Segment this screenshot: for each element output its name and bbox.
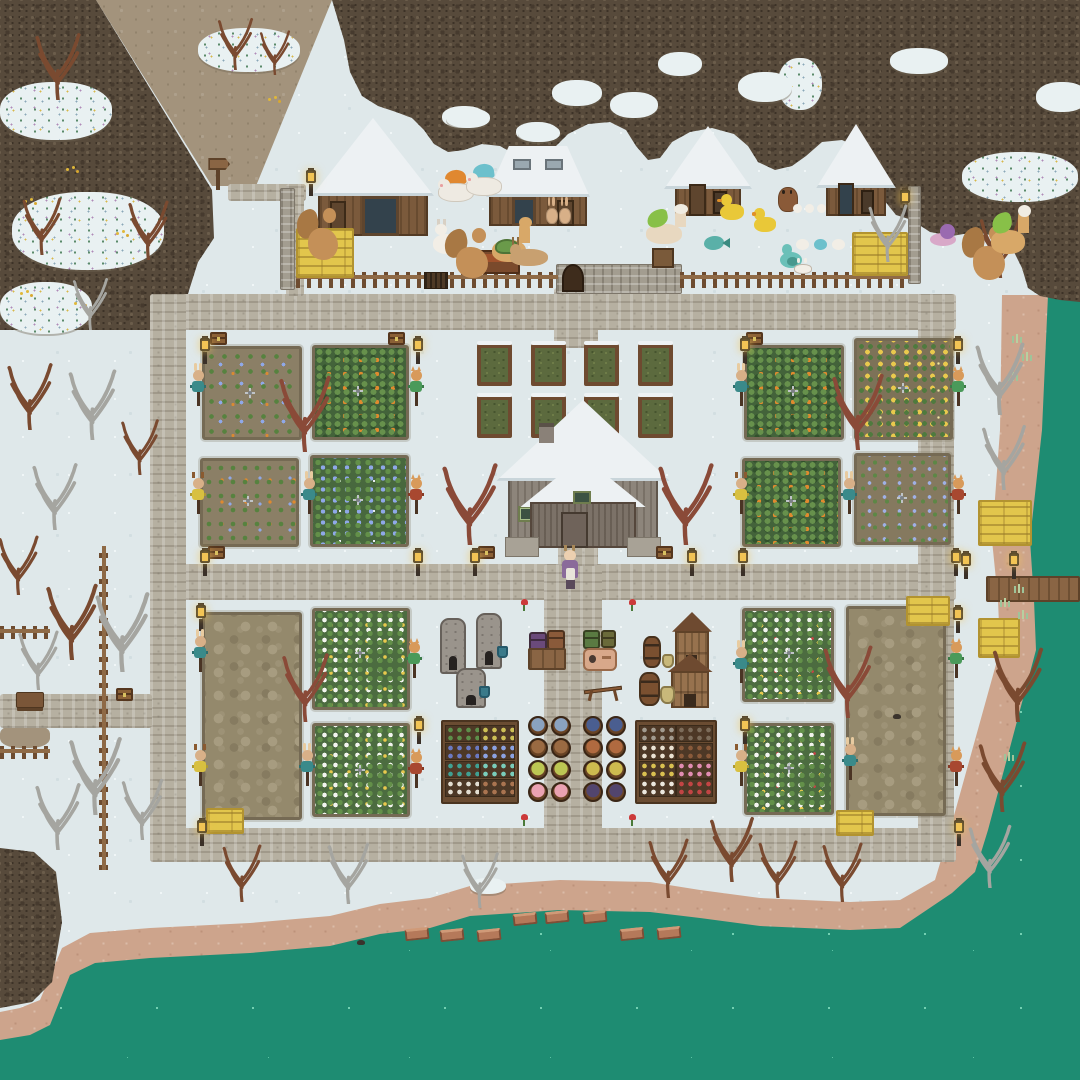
yellow-flowers [20, 290, 34, 298]
scarecrow-bunny[interactable] [841, 476, 857, 516]
press-machine[interactable] [583, 648, 617, 671]
bare-tree[interactable] [817, 838, 868, 902]
animal-dragon[interactable] [444, 226, 488, 278]
scarecrow-cat[interactable] [948, 640, 964, 680]
bare-tree[interactable] [435, 457, 505, 545]
bare-tree[interactable] [322, 838, 375, 904]
lantern-post[interactable] [958, 551, 974, 581]
snow-pocket [610, 92, 658, 118]
bare-tree[interactable] [753, 836, 803, 898]
stone-path-top [150, 294, 956, 330]
bare-tree[interactable] [1, 358, 59, 430]
wooden-crate[interactable] [652, 248, 674, 268]
machine-chest[interactable] [601, 630, 616, 648]
pen-gate-arch[interactable] [562, 264, 584, 292]
red-tulip [521, 599, 528, 611]
lantern-post[interactable] [1006, 551, 1022, 581]
bare-tree[interactable] [116, 415, 164, 475]
small-bird[interactable] [357, 940, 365, 945]
grass-tuft [1000, 598, 1010, 607]
sprinkler[interactable] [353, 386, 363, 396]
lantern-post[interactable] [410, 548, 426, 578]
snow-bush [446, 108, 490, 128]
vine-trellis[interactable] [584, 344, 619, 386]
produce-stand-left[interactable] [441, 720, 519, 804]
scarecrow-cat[interactable] [408, 476, 424, 516]
animal-duck[interactable] [754, 208, 778, 232]
wooden-fence [0, 746, 50, 759]
bare-tree[interactable] [13, 626, 64, 690]
animal-rabbit[interactable] [794, 258, 812, 274]
lantern-post[interactable] [950, 336, 966, 366]
animal-dots[interactable] [793, 203, 827, 213]
vine-trellis[interactable] [638, 344, 673, 386]
scarecrow-cat[interactable] [950, 476, 966, 516]
scarecrow-deer[interactable] [733, 476, 749, 516]
animal-llamagreen[interactable] [991, 208, 1029, 254]
wooden-keg[interactable] [643, 636, 661, 668]
animal-rabbit[interactable] [559, 198, 571, 224]
scarecrow-cat[interactable] [408, 750, 424, 790]
vine-trellis[interactable] [531, 344, 566, 386]
bare-tree[interactable] [62, 364, 123, 440]
bare-tree[interactable] [986, 642, 1050, 722]
scarecrow-deer[interactable] [190, 476, 206, 516]
lantern-post[interactable] [467, 548, 483, 578]
animal-fish[interactable] [704, 234, 730, 252]
small-bird[interactable] [893, 714, 901, 719]
animal-wingcow[interactable] [466, 164, 502, 196]
clay-pot[interactable] [662, 654, 674, 668]
snow-bush [518, 124, 560, 142]
bare-tree[interactable] [863, 200, 913, 262]
bare-tree[interactable] [972, 736, 1033, 812]
bare-tree[interactable] [217, 840, 267, 902]
yellow-flowers [268, 96, 282, 104]
bare-tree[interactable] [68, 274, 113, 330]
beach-plank [404, 927, 429, 941]
animal-duck[interactable] [720, 194, 746, 220]
bare-tree[interactable] [817, 640, 879, 718]
lantern-post[interactable] [684, 548, 700, 578]
bare-tree[interactable] [963, 820, 1017, 888]
red-tulip [629, 599, 636, 611]
wooden-keg[interactable] [639, 672, 660, 706]
clay-pot[interactable] [660, 686, 675, 704]
sprinkler[interactable] [243, 496, 253, 506]
scarecrow-bunny[interactable] [733, 368, 749, 408]
bare-tree[interactable] [17, 193, 67, 255]
lantern-post[interactable] [194, 818, 210, 848]
bare-tree[interactable] [29, 28, 87, 100]
lantern-post[interactable] [197, 548, 213, 578]
work-table[interactable] [528, 648, 566, 670]
sprinkler[interactable] [355, 648, 365, 658]
lantern-post[interactable] [411, 716, 427, 746]
water-bucket[interactable] [479, 686, 490, 698]
scarecrow-bunny[interactable] [190, 368, 206, 408]
sprinkler[interactable] [897, 493, 907, 503]
bare-tree[interactable] [643, 834, 694, 898]
snow-pocket [552, 80, 602, 106]
snow-pocket [1036, 82, 1080, 112]
animal-deer[interactable] [510, 244, 548, 266]
scarecrow-cat[interactable] [406, 640, 422, 680]
snow-pocket [890, 48, 948, 74]
animal-llamagreen[interactable] [646, 206, 686, 244]
scarecrow-bunny[interactable] [299, 748, 315, 788]
vine-trellis[interactable] [477, 344, 512, 386]
hay-bale-stack[interactable] [978, 500, 1032, 546]
beach-plank [582, 910, 607, 924]
snow-pocket [738, 72, 792, 102]
lantern-post[interactable] [197, 336, 213, 366]
snow-pocket [658, 52, 702, 76]
hay-bale-stack[interactable] [206, 808, 244, 834]
storage-chest[interactable] [656, 546, 673, 559]
bench [16, 692, 44, 708]
beach-plank [656, 926, 681, 940]
snow-pocket [962, 152, 1078, 202]
bare-tree[interactable] [704, 812, 760, 882]
bare-tree[interactable] [29, 778, 87, 850]
stone-kiln[interactable] [476, 613, 502, 669]
storage-chest[interactable] [116, 688, 133, 701]
scarecrow-deer[interactable] [733, 748, 749, 788]
sprinkler[interactable] [788, 386, 798, 396]
bare-tree[interactable] [116, 774, 169, 840]
red-tulip [521, 814, 528, 826]
storage-chest[interactable] [388, 332, 405, 345]
red-tulip [629, 814, 636, 826]
bare-tree[interactable] [456, 848, 504, 908]
bare-tree[interactable] [0, 531, 44, 595]
bare-tree[interactable] [825, 368, 891, 450]
stone-wall [280, 188, 295, 290]
bare-tree[interactable] [256, 27, 294, 75]
scarecrow-cat[interactable] [950, 368, 966, 408]
bare-tree[interactable] [88, 586, 157, 672]
hay-bale-stack[interactable] [906, 596, 950, 626]
machine-chest[interactable] [547, 630, 565, 650]
water-bucket[interactable] [497, 646, 508, 658]
stone-path-center-v [544, 564, 602, 862]
scarecrow-bunny[interactable] [842, 742, 858, 782]
scarecrow-cat[interactable] [408, 368, 424, 408]
animal-dragon[interactable] [296, 206, 338, 260]
beach-plank [512, 912, 537, 926]
stone-path-gate-v [554, 288, 598, 348]
bare-tree[interactable] [969, 337, 1031, 415]
lantern-post[interactable] [735, 548, 751, 578]
beach-plank [476, 928, 501, 942]
grass-tuft [1018, 610, 1028, 619]
yellow-flowers [66, 166, 80, 174]
barrel-rack-left[interactable] [528, 716, 572, 804]
animal-rabbit[interactable] [546, 198, 558, 224]
lantern-post[interactable] [950, 605, 966, 635]
bare-tree[interactable] [26, 458, 84, 530]
bare-tree[interactable] [272, 370, 338, 452]
produce-stand-right[interactable] [635, 720, 717, 804]
lantern-post[interactable] [303, 168, 319, 198]
lantern-post[interactable] [737, 716, 753, 746]
lantern-post[interactable] [737, 336, 753, 366]
scarecrow-bunny[interactable] [733, 645, 749, 685]
farm-map-canvas [0, 0, 1080, 1080]
stone-kiln[interactable] [440, 618, 466, 674]
beach-plank [544, 910, 569, 924]
bare-tree[interactable] [976, 420, 1032, 490]
hay-bale-stack[interactable] [836, 810, 874, 836]
bare-tree[interactable] [651, 457, 721, 545]
beach-plank [619, 927, 644, 941]
bare-tree[interactable] [276, 648, 335, 722]
sawhorse-bench[interactable] [584, 682, 622, 702]
lantern-post[interactable] [410, 336, 426, 366]
animal-slug[interactable] [930, 224, 956, 246]
scarecrow-bunny[interactable] [301, 476, 317, 516]
bare-tree[interactable] [123, 196, 174, 260]
animal-dots[interactable] [796, 238, 846, 250]
farmhouse[interactable] [498, 400, 668, 565]
sprinkler[interactable] [245, 388, 255, 398]
scarecrow-bunny[interactable] [192, 634, 208, 674]
signpost[interactable] [206, 158, 230, 190]
grass-tuft [1014, 584, 1024, 593]
bare-tree[interactable] [213, 14, 258, 70]
barrel-rack-right[interactable] [583, 716, 627, 804]
sprinkler[interactable] [784, 763, 794, 773]
sprinkler[interactable] [784, 648, 794, 658]
player-character[interactable] [561, 548, 579, 590]
sprinkler[interactable] [353, 495, 363, 505]
sprinkler[interactable] [355, 765, 365, 775]
scarecrow-deer[interactable] [192, 748, 208, 788]
sprinkler[interactable] [786, 496, 796, 506]
machine-chest[interactable] [583, 630, 600, 649]
sprinkler[interactable] [898, 383, 908, 393]
scarecrow-cat[interactable] [948, 748, 964, 788]
beach-plank [439, 928, 464, 942]
